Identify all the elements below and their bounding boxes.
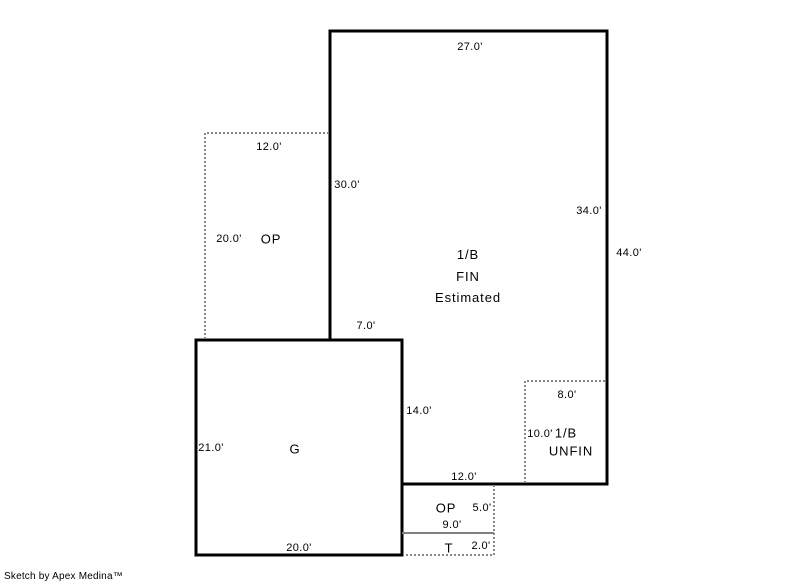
- dim-main-bottom: 12.0': [451, 471, 477, 483]
- floor-plan-sketch: 27.0' 12.0' 30.0' 20.0' 34.0' 44.0' 7.0'…: [0, 0, 800, 587]
- op-upper-area-label: OP: [261, 232, 282, 247]
- main-area-label-line3: Estimated: [435, 287, 501, 309]
- dim-main-right-inner: 34.0': [576, 205, 602, 217]
- stoop-area-label: T: [445, 541, 454, 556]
- op-lower-area-label: OP: [436, 501, 457, 516]
- main-area-label-line1: 1/B: [435, 244, 501, 266]
- unfin-area-label-line2: UNFIN: [549, 444, 593, 459]
- dim-garage-height: 21.0': [198, 442, 224, 454]
- dim-main-left: 30.0': [334, 179, 360, 191]
- sketch-credit: Sketch by Apex Medina™: [4, 571, 123, 582]
- dim-unfin-height: 10.0': [527, 428, 553, 440]
- dim-main-top: 27.0': [457, 41, 483, 53]
- dim-main-step: 7.0': [357, 320, 376, 332]
- floor-plan-drawing: [0, 0, 800, 587]
- dim-garage-width: 20.0': [286, 542, 312, 554]
- dim-op-upper-height: 20.0': [216, 233, 242, 245]
- main-area-label: 1/B FIN Estimated: [435, 244, 501, 309]
- dim-op-upper-width: 12.0': [256, 141, 282, 153]
- dim-op-lower-width: 9.0': [443, 519, 462, 531]
- dim-main-right-outer: 44.0': [616, 247, 642, 259]
- unfin-area-label-line1: 1/B: [555, 426, 577, 441]
- dim-main-left-lower: 14.0': [406, 405, 432, 417]
- dim-stoop-height: 2.0': [472, 540, 491, 552]
- garage-area-label: G: [289, 442, 300, 457]
- dim-unfin-width: 8.0': [558, 389, 577, 401]
- main-area-label-line2: FIN: [435, 265, 501, 287]
- dim-op-lower-height: 5.0': [473, 502, 492, 514]
